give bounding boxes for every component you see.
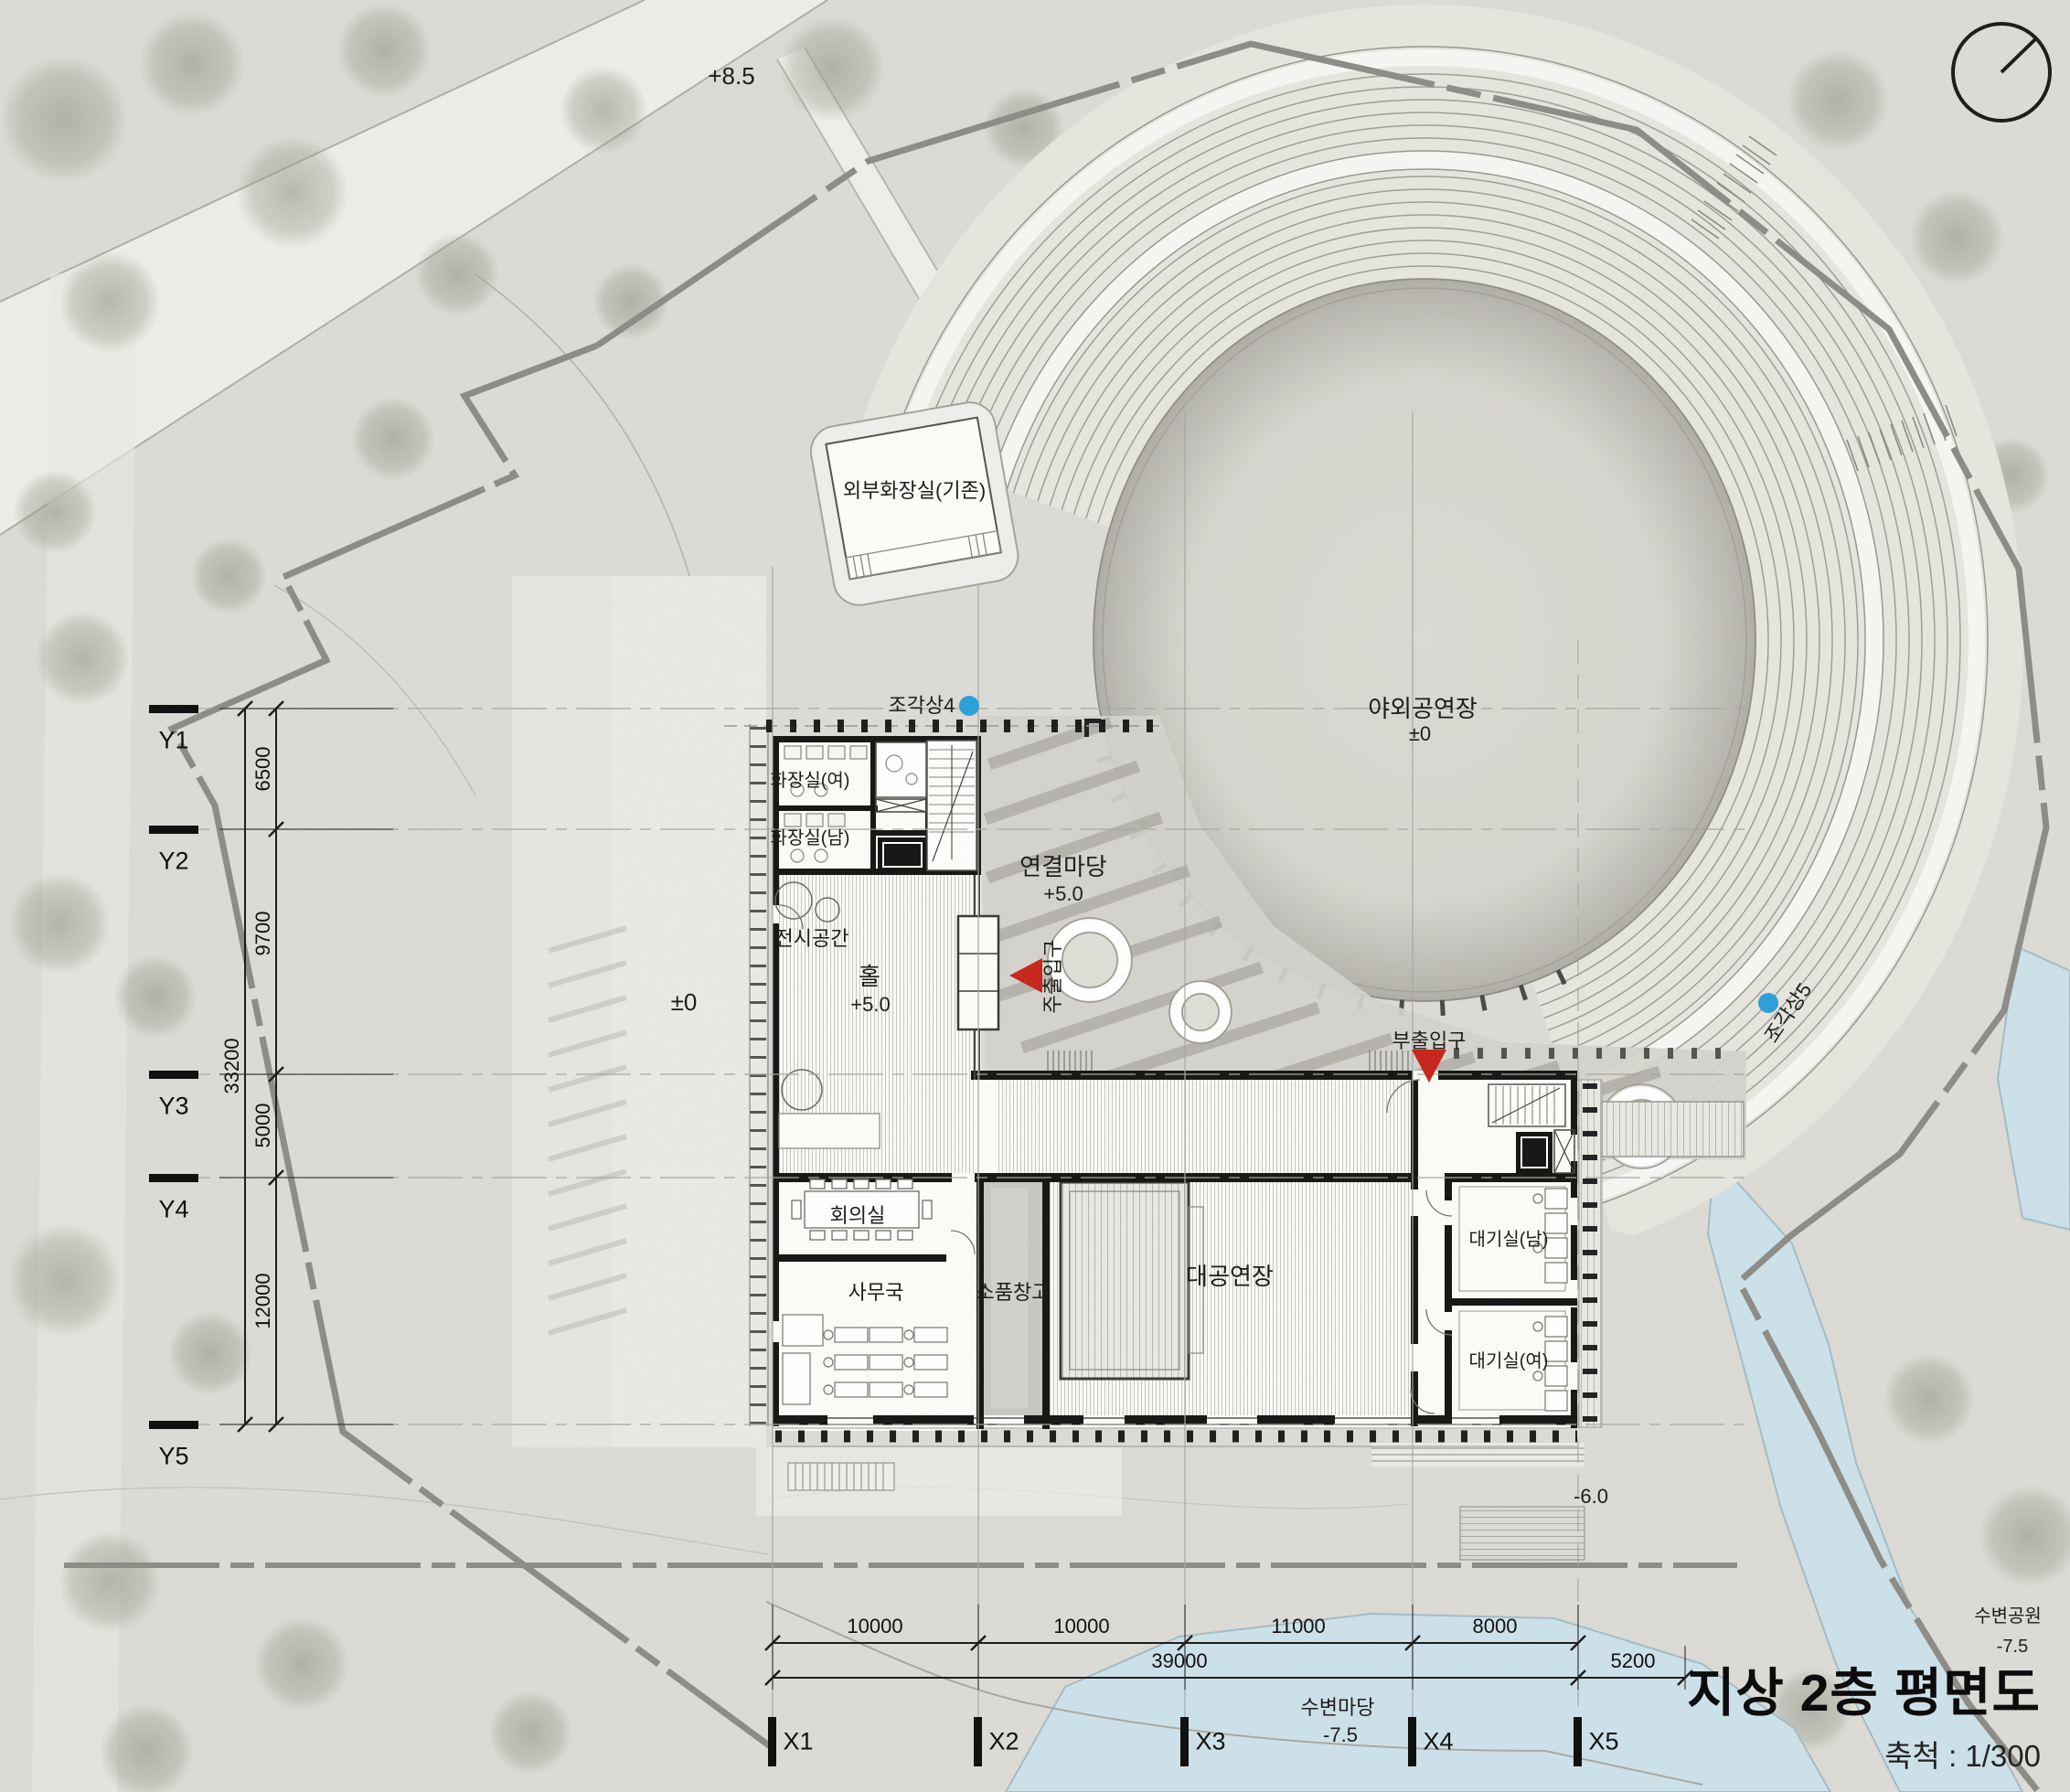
title-block: 지상 2층 평면도 축척 : 1/300 xyxy=(1687,1651,2041,1776)
label-hall: 홀 xyxy=(859,965,880,988)
dim-x-5200: 5200 xyxy=(1611,1651,1656,1671)
grid-label-x3: X3 xyxy=(1195,1730,1225,1755)
label-props: 소품창고 xyxy=(976,1283,1051,1303)
grid-label-y2: Y2 xyxy=(158,849,188,874)
level-lower-plaza: -6.0 xyxy=(1574,1487,1608,1507)
dim-x-10000b: 10000 xyxy=(1053,1616,1109,1637)
dim-x-10000a: 10000 xyxy=(847,1616,902,1637)
label-main-entrance: 주출입구 xyxy=(1043,940,1063,1014)
label-waterfront-park: 수변공원 xyxy=(1974,1607,2042,1626)
level-plaza: ±0 xyxy=(671,990,698,1014)
grid-label-x1: X1 xyxy=(783,1730,813,1755)
sheet-scale: 축척 : 1/300 xyxy=(1687,1732,2041,1776)
grid-label-y5: Y5 xyxy=(158,1445,188,1469)
grid-label-x5: X5 xyxy=(1588,1730,1618,1755)
grid-label-y1: Y1 xyxy=(158,729,188,753)
label-sub-entrance: 부출입구 xyxy=(1392,1031,1467,1051)
label-sculpture4: 조각상4 xyxy=(889,696,955,716)
grid-label-y3: Y3 xyxy=(158,1094,188,1119)
label-amphitheater: 야외공연장 xyxy=(1368,697,1478,720)
label-meeting: 회의실 xyxy=(830,1206,886,1226)
grid-label-y4: Y4 xyxy=(158,1198,188,1222)
level-waterfront-yard: -7.5 xyxy=(1323,1725,1358,1745)
label-main-theater: 대공연장 xyxy=(1186,1264,1274,1288)
dim-y-total: 33200 xyxy=(222,1038,242,1093)
level-yard: +5.0 xyxy=(1043,884,1083,904)
dim-y-5000: 5000 xyxy=(253,1104,273,1148)
label-waiting-f: 대기실(여) xyxy=(1469,1352,1549,1371)
level-amphitheater: ±0 xyxy=(1409,724,1431,744)
label-ext-toilet: 외부화장실(기존) xyxy=(843,481,986,501)
label-waterfront-yard: 수변마당 xyxy=(1301,1698,1375,1718)
grid-label-x2: X2 xyxy=(988,1730,1019,1755)
dim-x-11000: 11000 xyxy=(1271,1616,1326,1637)
label-exhibition: 전시공간 xyxy=(775,929,849,949)
paper-texture xyxy=(0,0,2070,1792)
dim-y-9700: 9700 xyxy=(253,912,273,956)
label-waiting-m: 대기실(남) xyxy=(1469,1231,1549,1249)
sheet-title: 지상 2층 평면도 xyxy=(1687,1651,2041,1726)
plan-drawing xyxy=(0,0,2070,1792)
level-road-top: +8.5 xyxy=(708,64,754,88)
label-toilet-w: 화장실(여) xyxy=(771,772,850,790)
label-toilet-m: 화장실(남) xyxy=(771,829,850,848)
grid-label-x4: X4 xyxy=(1423,1730,1453,1755)
dim-y-12000: 12000 xyxy=(253,1273,273,1328)
floor-plan-sheet: +8.5 외부화장실(기존) 조각상4 야외공연장 ±0 ±0 화장실(여) 화… xyxy=(0,0,2070,1792)
dim-x-total: 39000 xyxy=(1151,1651,1207,1671)
dim-y-6500: 6500 xyxy=(253,747,273,792)
dim-x-8000: 8000 xyxy=(1473,1616,1518,1637)
label-office: 사무국 xyxy=(848,1283,904,1303)
level-hall: +5.0 xyxy=(850,995,890,1015)
label-yard: 연결마당 xyxy=(1019,855,1107,879)
